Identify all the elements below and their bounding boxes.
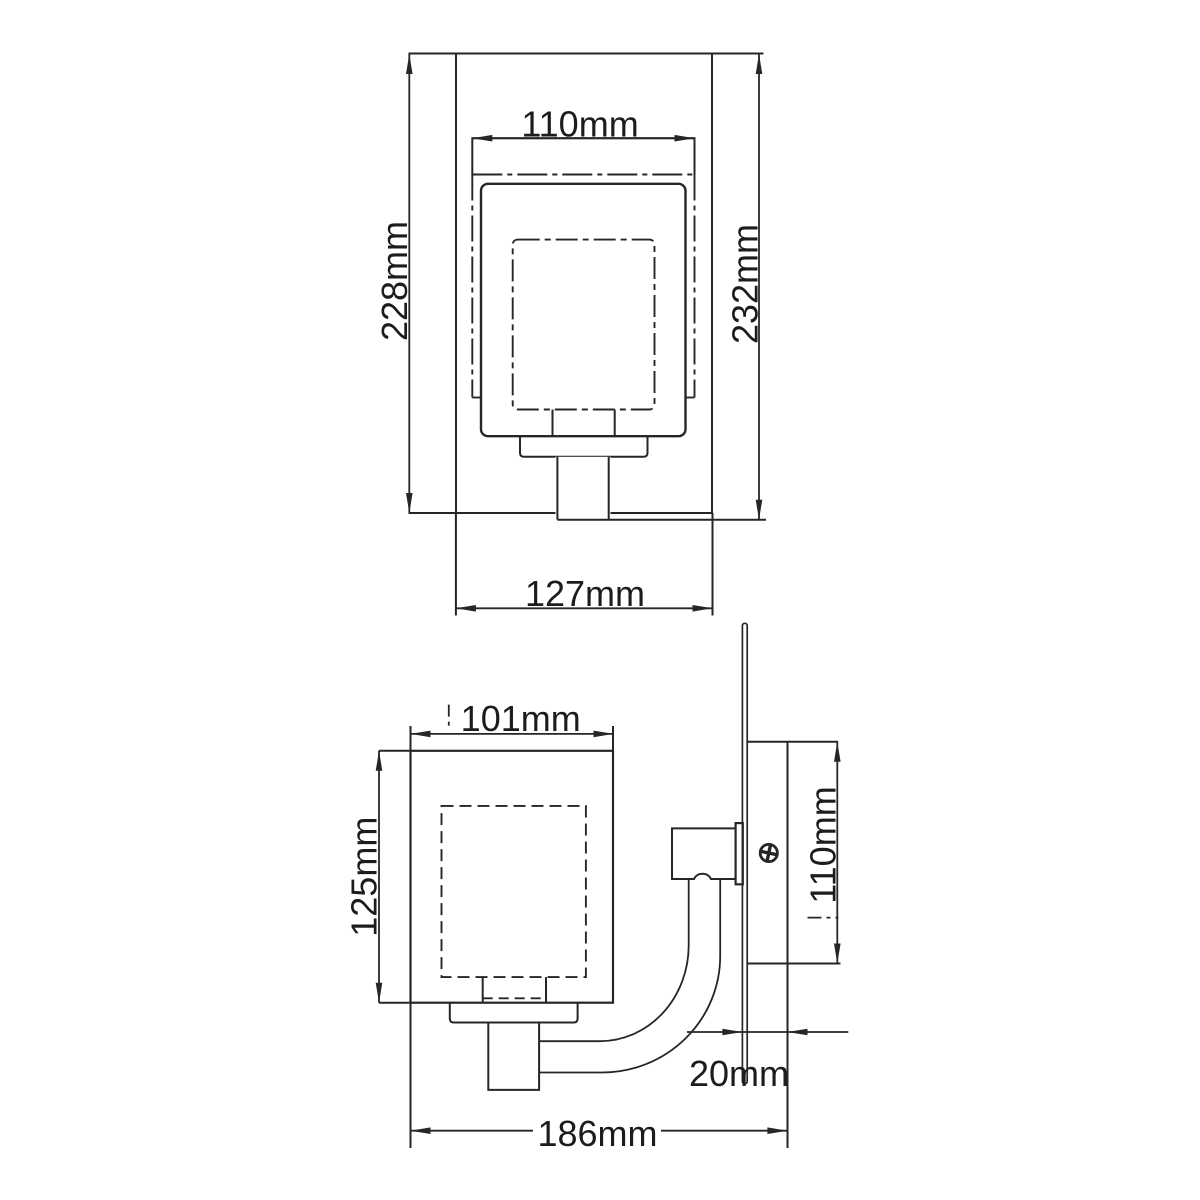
svg-text:101mm: 101mm	[461, 698, 581, 739]
svg-text:110mm: 110mm	[521, 104, 638, 145]
svg-text:20mm: 20mm	[689, 1053, 789, 1094]
svg-text:228mm: 228mm	[374, 221, 415, 341]
svg-text:127mm: 127mm	[525, 573, 645, 614]
svg-text:125mm: 125mm	[344, 817, 385, 937]
svg-text:186mm: 186mm	[537, 1113, 657, 1154]
svg-text:232mm: 232mm	[725, 224, 766, 344]
svg-text:110mm: 110mm	[802, 786, 843, 903]
